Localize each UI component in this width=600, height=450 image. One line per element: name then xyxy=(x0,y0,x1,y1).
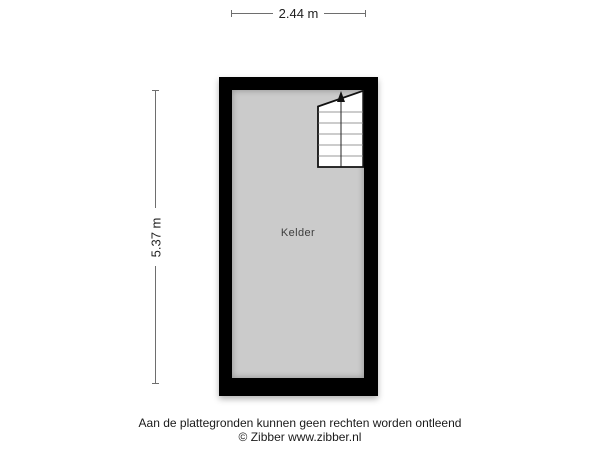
copyright-text: © Zibber www.zibber.nl xyxy=(0,431,600,444)
room-label-kelder: Kelder xyxy=(232,227,364,239)
basement-floor-plan: Kelder xyxy=(219,77,378,396)
dimension-line-segment xyxy=(155,91,156,208)
dimension-tick-bottom xyxy=(152,383,159,384)
stairs-up-arrow-icon xyxy=(337,91,345,102)
floor-plan-page: 2.44 m 5.37 m xyxy=(0,0,600,450)
width-dimension: 2.44 m xyxy=(231,6,366,21)
height-dimension: 5.37 m xyxy=(147,90,164,384)
height-dimension-label-wrap: 5.37 m xyxy=(136,208,176,266)
disclaimer-text: Aan de plattegronden kunnen geen rechten… xyxy=(0,417,600,430)
dimension-line-segment xyxy=(324,13,365,14)
dimension-tick-right xyxy=(365,10,366,17)
dimension-line-segment xyxy=(232,13,273,14)
width-dimension-label: 2.44 m xyxy=(273,6,325,21)
dimension-line-segment xyxy=(155,266,156,383)
staircase xyxy=(317,90,364,168)
height-dimension-label: 5.37 m xyxy=(148,217,163,257)
